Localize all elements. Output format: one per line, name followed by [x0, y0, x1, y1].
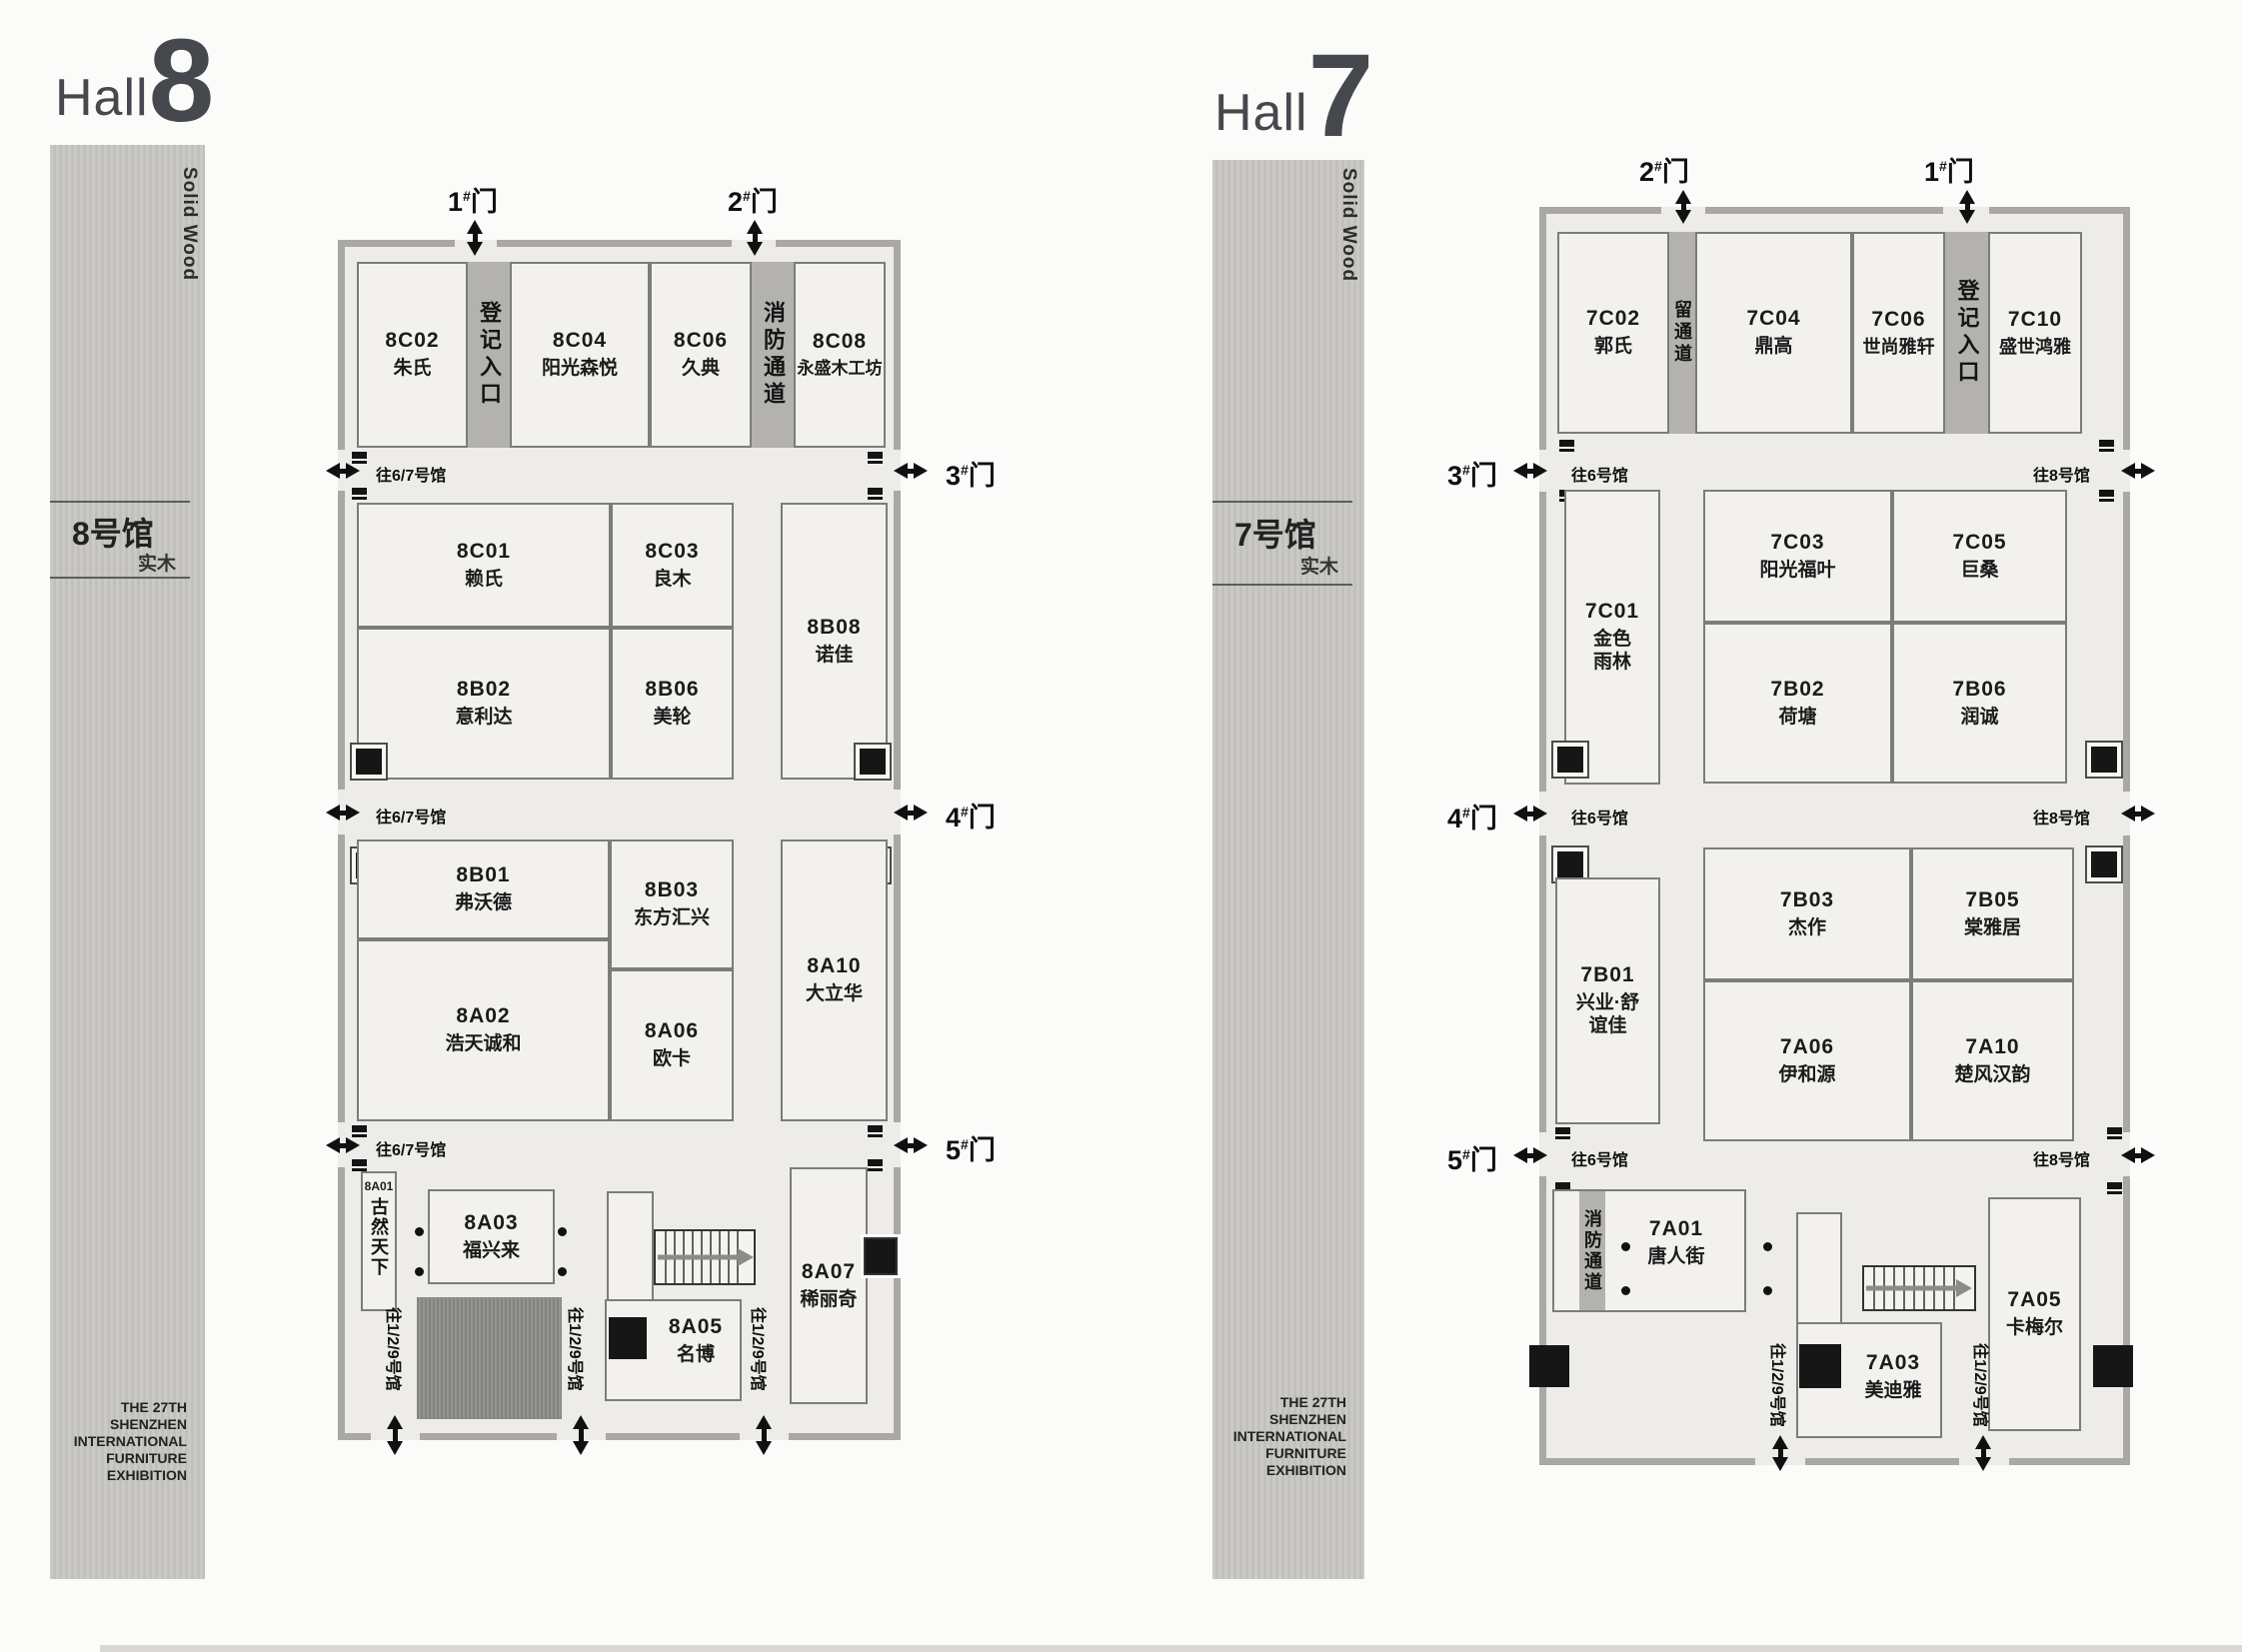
booth-7B06: 7B06 润诚: [1892, 623, 2067, 784]
booth-8C08: 8C08 永盛木工坊: [794, 262, 886, 448]
booth-8C04: 8C04 阳光森悦: [510, 262, 650, 448]
booth-code: 7C04: [1746, 307, 1800, 331]
passage-to-hall67-label: 往6/7号馆: [376, 804, 446, 827]
booth-name: 浩天诚和: [445, 1033, 521, 1056]
footer-line: INTERNATIONAL: [57, 1433, 187, 1450]
footer-line: THE 27TH: [57, 1399, 187, 1416]
booth-8B02: 8B02 意利达: [357, 628, 611, 780]
wall: [1989, 207, 2130, 214]
hall7-solid-wood-label: Solid Wood: [1337, 168, 1359, 282]
booth-name: 美轮: [653, 707, 691, 730]
booth-name: 久典: [682, 358, 720, 381]
dot-marker: [558, 1227, 567, 1236]
booth-name: 赖氏: [465, 569, 503, 592]
wall: [894, 491, 901, 790]
connector-icon: [1555, 1127, 1570, 1139]
passage-to-hall8-label: 往8号馆: [2033, 1146, 2090, 1170]
divider: [50, 501, 190, 503]
door-hash: #: [743, 188, 751, 204]
wall: [1539, 1176, 1546, 1465]
wall: [776, 240, 901, 247]
passage-to-hall129-label: 往1/2/9号馆: [383, 1307, 407, 1391]
booth-7B05: 7B05 棠雅居: [1911, 847, 2074, 980]
booth-code: 7C05: [1952, 531, 2006, 555]
passage-arrow-icon: [570, 1407, 592, 1463]
reserved-passage-strip: 留通道: [1669, 232, 1695, 434]
footer-line: FURNITURE: [1216, 1445, 1346, 1462]
fire-passage-strip: 消防通道: [1579, 1191, 1605, 1310]
booth-name: 稀丽奇: [800, 1289, 857, 1312]
wall: [420, 1433, 557, 1440]
door-3-label: 3#门: [1447, 454, 1497, 493]
divider: [50, 577, 190, 579]
passage-to-hall129-label: 往1/2/9号馆: [1970, 1343, 1994, 1427]
booth-7C06: 7C06 世尚雅轩: [1852, 232, 1945, 434]
booth-code: 8B02: [457, 678, 511, 702]
footer-line: EXHIBITION: [57, 1467, 187, 1484]
door-suffix: 门: [969, 461, 996, 491]
connector-icon: [868, 488, 883, 500]
door-4-arrow-icon: [886, 802, 936, 824]
door-hash: #: [1462, 805, 1470, 821]
hall8-title: Hall8: [55, 10, 214, 130]
booth-name: 永盛木工坊: [798, 359, 883, 379]
booth-8B06: 8B06 美轮: [611, 628, 734, 780]
connector-icon: [868, 1125, 883, 1137]
booth-name: 东方汇兴: [634, 907, 710, 930]
booth-name: 欧卡: [653, 1048, 691, 1071]
wall: [2123, 492, 2130, 792]
door-5-arrow-icon: [886, 1134, 936, 1156]
booth-name: 世尚雅轩: [1863, 337, 1935, 359]
booth-name: 大立华: [806, 983, 863, 1006]
booth-name: 鼎高: [1754, 336, 1792, 359]
door-hash: #: [463, 188, 471, 204]
booth-code: 7C10: [2008, 308, 2062, 332]
floor-plan-page: Hall8 Solid Wood 8号馆 实木 THE 27TH SHENZHE…: [0, 0, 2242, 1652]
door-3-arrow-icon: [1505, 460, 1555, 482]
door-5-arrow-icon: [1505, 1144, 1555, 1166]
booth-name: 古然天下: [370, 1197, 388, 1277]
door-num: 4: [946, 803, 961, 832]
registration-entrance-label: 登记入口: [1956, 279, 1978, 387]
booth-code: 8B03: [645, 878, 699, 902]
booth-code: 8A01: [365, 1179, 394, 1193]
divider: [1212, 584, 1352, 586]
booth-7B03: 7B03 杰作: [1703, 847, 1911, 980]
door-num: 3: [1447, 461, 1462, 491]
booth-7A06: 7A06 伊和源: [1703, 980, 1911, 1141]
booth-7C04: 7C04 鼎高: [1695, 232, 1852, 434]
booth-code: 7A06: [1780, 1035, 1834, 1059]
booth-name: 杰作: [1788, 917, 1826, 940]
booth-8A01: 8A01 古然天下: [361, 1171, 397, 1311]
passage-arrow-icon: [2113, 803, 2163, 825]
booth-8C02: 8C02 朱氏: [357, 262, 468, 448]
wall: [1539, 207, 1546, 450]
connector-icon: [868, 452, 883, 464]
hall7-cn-label: 7号馆: [1234, 510, 1316, 556]
wall: [1805, 1458, 1959, 1465]
booth-name: 荷塘: [1778, 707, 1816, 730]
door-2-arrow-icon: [744, 212, 766, 264]
wall: [1539, 492, 1546, 792]
connector-icon: [352, 1159, 367, 1171]
booth-code: 7B06: [1952, 678, 2006, 702]
booth-code: 7C06: [1871, 308, 1925, 332]
registration-entrance-strip: 登记入口: [468, 262, 510, 448]
booth-code: 7C02: [1586, 307, 1640, 331]
passage-to-hall6-label: 往6号馆: [1571, 805, 1628, 828]
door-num: 4: [1447, 804, 1462, 833]
booth-7C03: 7C03 阳光福叶: [1703, 490, 1892, 623]
wall: [338, 1167, 345, 1440]
door-num: 1: [1924, 157, 1939, 187]
door-1-arrow-icon: [464, 212, 486, 264]
door-hash: #: [1654, 158, 1662, 174]
booth-name: 良木: [653, 569, 691, 592]
passage-to-hall8-label: 往8号馆: [2033, 805, 2090, 828]
hall8-title-number: 8: [149, 33, 215, 130]
pillar-icon: [2087, 743, 2121, 777]
door-suffix: 门: [1470, 804, 1497, 833]
booth-8A02: 8A02 浩天诚和: [357, 939, 610, 1121]
booth-code: 8C04: [553, 329, 607, 353]
door-2-arrow-icon: [1672, 182, 1694, 232]
footer-line: SHENZHEN: [57, 1416, 187, 1433]
passage-to-hall6-label: 往6号馆: [1571, 462, 1628, 486]
hall8-material-label: 实木: [138, 549, 176, 576]
dot-marker: [1621, 1242, 1630, 1251]
booth-code: 7B01: [1580, 963, 1634, 987]
wall: [497, 240, 732, 247]
booth-name: 阳光福叶: [1759, 560, 1835, 583]
booth-code: 8A05: [652, 1315, 740, 1339]
block-icon: [2093, 1345, 2133, 1387]
connector-icon: [868, 1159, 883, 1171]
passage-to-hall67-label: 往6/7号馆: [376, 462, 446, 486]
connector-icon: [2107, 1182, 2122, 1194]
booth-code: 8A02: [456, 1004, 510, 1028]
booth-8C01: 8C01 赖氏: [357, 503, 611, 628]
door-3-arrow-icon: [886, 460, 936, 482]
booth-8A05: 8A05 名博: [652, 1315, 740, 1367]
connector-icon: [2099, 440, 2114, 452]
booth-name: 楚风汉韵: [1954, 1064, 2030, 1087]
booth-code: 8C02: [385, 329, 439, 353]
door-num: 2: [728, 187, 743, 217]
door-hash: #: [961, 804, 969, 820]
passage-to-hall6-label: 往6号馆: [1571, 1146, 1628, 1170]
fire-passage-strip: 消防通道: [752, 262, 794, 448]
booth-code: 8A06: [645, 1019, 699, 1043]
passage-arrow-icon: [2113, 1144, 2163, 1166]
booth-code: 7A01: [1613, 1217, 1739, 1241]
booth-name: 润诚: [1960, 707, 1998, 730]
block-icon: [1799, 1344, 1841, 1388]
door-1-arrow-icon: [1956, 182, 1978, 232]
wall: [606, 1433, 740, 1440]
booth-name: 名博: [652, 1344, 740, 1367]
booth-code: 7B03: [1780, 888, 1834, 912]
passage-arrow-icon: [318, 1134, 368, 1156]
dot-marker: [558, 1267, 567, 1276]
passage-to-hall8-label: 往8号馆: [2033, 462, 2090, 486]
door-hash: #: [1939, 158, 1947, 174]
wall: [2009, 1458, 2130, 1465]
staircase-icon: [1862, 1265, 1976, 1311]
wall: [789, 1433, 901, 1440]
booth-name: 朱氏: [393, 358, 431, 381]
dot-marker: [1621, 1286, 1630, 1295]
hall8-sidebar: Solid Wood 8号馆 实木 THE 27TH SHENZHEN INTE…: [50, 145, 205, 1579]
footer-line: SHENZHEN: [1216, 1411, 1346, 1428]
wall: [1539, 835, 1546, 1132]
wall: [338, 1433, 371, 1440]
booth-7C01: 7C01 金色雨林: [1564, 490, 1660, 785]
booth-7B01: 7B01 兴业·舒谊佳: [1555, 877, 1660, 1124]
booth-8B08: 8B08 诺佳: [781, 503, 888, 780]
door-num: 2: [1639, 157, 1654, 187]
door-hash: #: [961, 1136, 969, 1152]
passage-arrow-icon: [753, 1407, 775, 1463]
connector-icon: [1559, 440, 1574, 452]
booth-name: 巨桑: [1960, 560, 1998, 583]
booth-7C05: 7C05 巨桑: [1892, 490, 2067, 623]
footer-line: INTERNATIONAL: [1216, 1428, 1346, 1445]
staircase-icon: [654, 1229, 756, 1285]
booth-name: 棠雅居: [1964, 917, 2021, 940]
door-hash: #: [1462, 1146, 1470, 1162]
hall8-solid-wood-label: Solid Wood: [178, 167, 200, 281]
door-num: 5: [1447, 1145, 1462, 1175]
door-num: 3: [946, 461, 961, 491]
booth-7A03: 7A03 美迪雅: [1847, 1351, 1939, 1403]
gray-block: [417, 1297, 562, 1419]
fire-passage-label: 消防通道: [762, 301, 784, 409]
wall: [1539, 1458, 1755, 1465]
door-5-label: 5#门: [1447, 1138, 1497, 1177]
hall7-title-number: 7: [1308, 48, 1374, 145]
booth-name: 郭氏: [1594, 336, 1632, 359]
door-suffix: 门: [969, 1135, 996, 1165]
hall7-sidebar: Solid Wood 7号馆 实木 THE 27TH SHENZHEN INTE…: [1212, 160, 1364, 1579]
booth-code: 8C08: [813, 330, 867, 354]
wall: [2123, 835, 2130, 1132]
booth-code: 8B06: [645, 678, 699, 702]
door-suffix: 门: [1470, 461, 1497, 491]
door-hash: #: [1462, 462, 1470, 478]
stair-wall-shape: [1796, 1212, 1842, 1334]
door-num: 5: [946, 1135, 961, 1165]
connector-icon: [352, 1125, 367, 1137]
booth-8A06: 8A06 欧卡: [610, 969, 734, 1121]
booth-name: 意利达: [455, 707, 512, 730]
booth-name: 金色雨林: [1590, 629, 1634, 675]
booth-code: 8C06: [674, 329, 728, 353]
passage-arrow-icon: [1972, 1427, 1994, 1479]
booth-name: 诺佳: [815, 645, 853, 668]
booth-name: 美迪雅: [1847, 1380, 1939, 1403]
booth-8C03: 8C03 良木: [611, 503, 734, 628]
wall: [2123, 1176, 2130, 1465]
booth-code: 7A10: [1965, 1035, 2019, 1059]
booth-name: 阳光森悦: [542, 358, 618, 381]
wall: [338, 240, 455, 247]
dot-marker: [415, 1227, 424, 1236]
footer-line: FURNITURE: [57, 1450, 187, 1467]
connector-icon: [352, 488, 367, 500]
door-suffix: 门: [969, 803, 996, 832]
passage-arrow-icon: [384, 1407, 406, 1463]
block-icon: [864, 1237, 898, 1275]
booth-code: 8C03: [645, 540, 699, 564]
hall7-title-word: Hall: [1214, 87, 1308, 145]
booth-code: 7B02: [1770, 678, 1824, 702]
door-4-label: 4#门: [1447, 797, 1497, 835]
booth-name: 盛世鸿雅: [1999, 337, 2071, 359]
booth-code: 7B05: [1965, 888, 2019, 912]
door-suffix: 门: [1470, 1145, 1497, 1175]
booth-name: 弗沃德: [455, 892, 512, 915]
pillar-icon: [856, 745, 890, 779]
registration-entrance-strip: 登记入口: [1945, 232, 1988, 434]
hall7-exhibition-footer: THE 27TH SHENZHEN INTERNATIONAL FURNITUR…: [1216, 1394, 1346, 1479]
booth-name: 福兴来: [463, 1240, 520, 1263]
hall7-material-label: 实木: [1300, 552, 1338, 579]
footer-line: THE 27TH: [1216, 1394, 1346, 1411]
passage-to-hall67-label: 往6/7号馆: [376, 1136, 446, 1160]
booth-code: 8A10: [807, 954, 861, 978]
registration-entrance-label: 登记入口: [478, 301, 500, 409]
door-hash: #: [961, 462, 969, 478]
divider: [1212, 501, 1352, 503]
wall: [894, 240, 901, 450]
booth-code: 8B01: [456, 863, 510, 887]
booth-8A07: 8A07 稀丽奇: [790, 1167, 868, 1404]
pillar-icon: [352, 745, 386, 779]
passage-arrow-icon: [318, 802, 368, 824]
booth-7C10: 7C10 盛世鸿雅: [1988, 232, 2082, 434]
hall7-title: Hall7: [1214, 25, 1373, 145]
door-num: 1: [448, 187, 463, 217]
booth-code: 7A05: [2007, 1288, 2061, 1312]
reserved-passage-label: 留通道: [1673, 300, 1691, 366]
booth-7A05: 7A05 卡梅尔: [1988, 1197, 2081, 1431]
booth-code: 8C01: [457, 540, 511, 564]
passage-arrow-icon: [1769, 1427, 1791, 1479]
wall: [1539, 207, 1661, 214]
door-3-label: 3#门: [946, 454, 996, 493]
block-icon: [1529, 1345, 1569, 1387]
passage-to-hall129-label: 往1/2/9号馆: [748, 1307, 772, 1391]
booth-code: 8B08: [807, 616, 861, 640]
pillar-icon: [1553, 847, 1587, 881]
booth-name: 兴业·舒谊佳: [1574, 992, 1642, 1038]
booth-code: 7C01: [1585, 600, 1639, 624]
door-4-label: 4#门: [946, 796, 996, 834]
hall8-title-word: Hall: [55, 72, 149, 130]
wall: [894, 1167, 901, 1440]
booth-name: 伊和源: [1778, 1064, 1835, 1087]
booth-code: 7C03: [1770, 531, 1824, 555]
dot-marker: [1763, 1242, 1772, 1251]
door-5-label: 5#门: [946, 1128, 996, 1167]
booth-name: 唐人街: [1613, 1246, 1739, 1269]
booth-8A10: 8A10 大立华: [781, 839, 888, 1121]
block-icon: [609, 1317, 647, 1359]
wall: [338, 834, 345, 1122]
dot-marker: [415, 1267, 424, 1276]
wall: [1705, 207, 1943, 214]
connector-icon: [2107, 1127, 2122, 1139]
scan-edge: [100, 1645, 2242, 1652]
pillar-icon: [2087, 847, 2121, 881]
booth-8B01: 8B01 弗沃德: [357, 839, 610, 939]
wall: [894, 834, 901, 1122]
booth-code: 8A07: [802, 1260, 856, 1284]
booth-code: 7A03: [1847, 1351, 1939, 1375]
door-4-arrow-icon: [1505, 803, 1555, 825]
booth-8A03: 8A03 福兴来: [428, 1189, 555, 1284]
hall8-exhibition-footer: THE 27TH SHENZHEN INTERNATIONAL FURNITUR…: [57, 1399, 187, 1484]
booth-8C06: 8C06 久典: [650, 262, 752, 448]
wall: [338, 491, 345, 790]
passage-to-hall129-label: 往1/2/9号馆: [565, 1307, 589, 1391]
booth-code: 8A03: [464, 1211, 518, 1235]
booth-7B02: 7B02 荷塘: [1703, 623, 1892, 784]
booth-8B03: 8B03 东方汇兴: [610, 839, 734, 969]
footer-line: EXHIBITION: [1216, 1462, 1346, 1479]
connector-icon: [352, 452, 367, 464]
booth-7A10: 7A10 楚风汉韵: [1911, 980, 2074, 1141]
pillar-icon: [1553, 743, 1587, 777]
dot-marker: [1763, 1286, 1772, 1295]
fire-passage-label: 消防通道: [1583, 1209, 1601, 1293]
booth-7A01-label: 7A01 唐人街: [1613, 1217, 1739, 1269]
passage-arrow-icon: [2113, 460, 2163, 482]
wall: [2123, 207, 2130, 450]
booth-name: 卡梅尔: [2006, 1317, 2063, 1340]
connector-icon: [2099, 490, 2114, 502]
booth-7C02: 7C02 郭氏: [1557, 232, 1669, 434]
wall: [338, 240, 345, 450]
passage-to-hall129-label: 往1/2/9号馆: [1767, 1343, 1791, 1427]
